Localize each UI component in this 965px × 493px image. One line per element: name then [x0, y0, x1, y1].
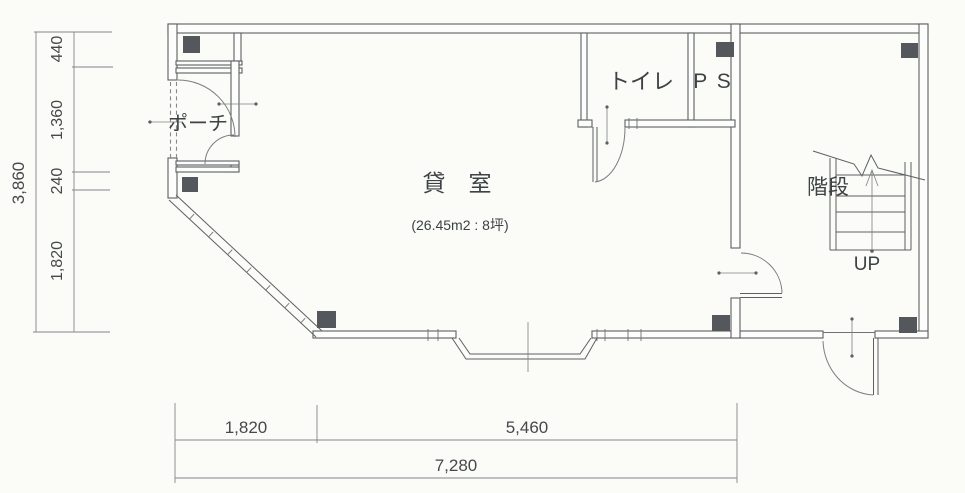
stairs-label: 階段: [807, 176, 849, 199]
porch-label: ポーチ: [168, 112, 228, 135]
porch-south-wall: [176, 161, 239, 165]
dim-bottom-total: 7,280: [435, 456, 478, 475]
bottom-dimension-guide: 1,820 5,460 7,280: [175, 403, 737, 483]
room-labels: ポーチ トイレ P S 貸 室 (26.45m2 : 8坪) 階段 UP: [168, 69, 880, 275]
south-wall: [740, 331, 823, 338]
dim-left-segment-1820: 1,820: [49, 241, 66, 281]
porch-east-wall: [234, 33, 241, 61]
dim-bottom-segment-5460: 5,460: [506, 418, 549, 437]
rental-room-label: 貸 室: [423, 170, 492, 196]
column-marker: [317, 311, 336, 328]
toilet-label: トイレ: [608, 69, 674, 94]
toilet-south-wall: [578, 120, 592, 127]
stair-partition-wall: [731, 298, 740, 338]
south-wall: [592, 331, 740, 338]
diagonal-window-wall: [169, 195, 322, 337]
porch-east-wall: [231, 61, 239, 136]
floor-plan-drawing: 440 1,360 240 1,820 3,860 1,820 5,460 7,…: [0, 0, 965, 493]
toilet-south-wall: [625, 120, 735, 127]
dim-left-segment-440: 440: [49, 36, 66, 63]
dim-left-total: 3,860: [9, 162, 28, 205]
floor-plan-sheet: 440 1,360 240 1,820 3,860 1,820 5,460 7,…: [0, 0, 965, 493]
south-wall: [313, 331, 456, 338]
toilet-door-swing-icon: [595, 127, 625, 182]
dim-bottom-segment-1820: 1,820: [225, 418, 268, 437]
stair-room-door: [740, 253, 782, 298]
entrance-door-swing-icon: [823, 341, 873, 395]
toilet-west-wall: [581, 33, 587, 127]
column-marker: [901, 43, 918, 58]
column-marker: [712, 315, 730, 331]
porch-inner-door-swing-icon: [205, 135, 234, 164]
rental-room-area: (26.45m2 : 8坪): [411, 217, 508, 233]
entrance-door: [823, 338, 878, 395]
pipe-shaft-label: P S: [693, 70, 732, 93]
north-wall: [168, 24, 928, 33]
bay-window: [452, 322, 597, 372]
up-label: UP: [854, 254, 880, 275]
column-marker: [716, 42, 734, 57]
stair-partition-wall: [731, 24, 740, 248]
dim-left-segment-1360: 1,360: [49, 100, 66, 140]
up-arrow-icon: [866, 170, 878, 253]
column-marker: [899, 317, 917, 333]
column-marker: [182, 177, 198, 192]
window-mullion-ticks: [189, 214, 305, 323]
east-wall: [919, 24, 928, 338]
stairs-icon: [813, 151, 925, 253]
toilet-door: [593, 127, 625, 182]
column-marker: [183, 36, 200, 53]
left-dimension-guide: 440 1,360 240 1,820 3,860: [9, 32, 113, 332]
dim-left-segment-240: 240: [49, 168, 66, 195]
porch-structure: [176, 33, 242, 172]
porch-south-wall: [176, 167, 239, 172]
